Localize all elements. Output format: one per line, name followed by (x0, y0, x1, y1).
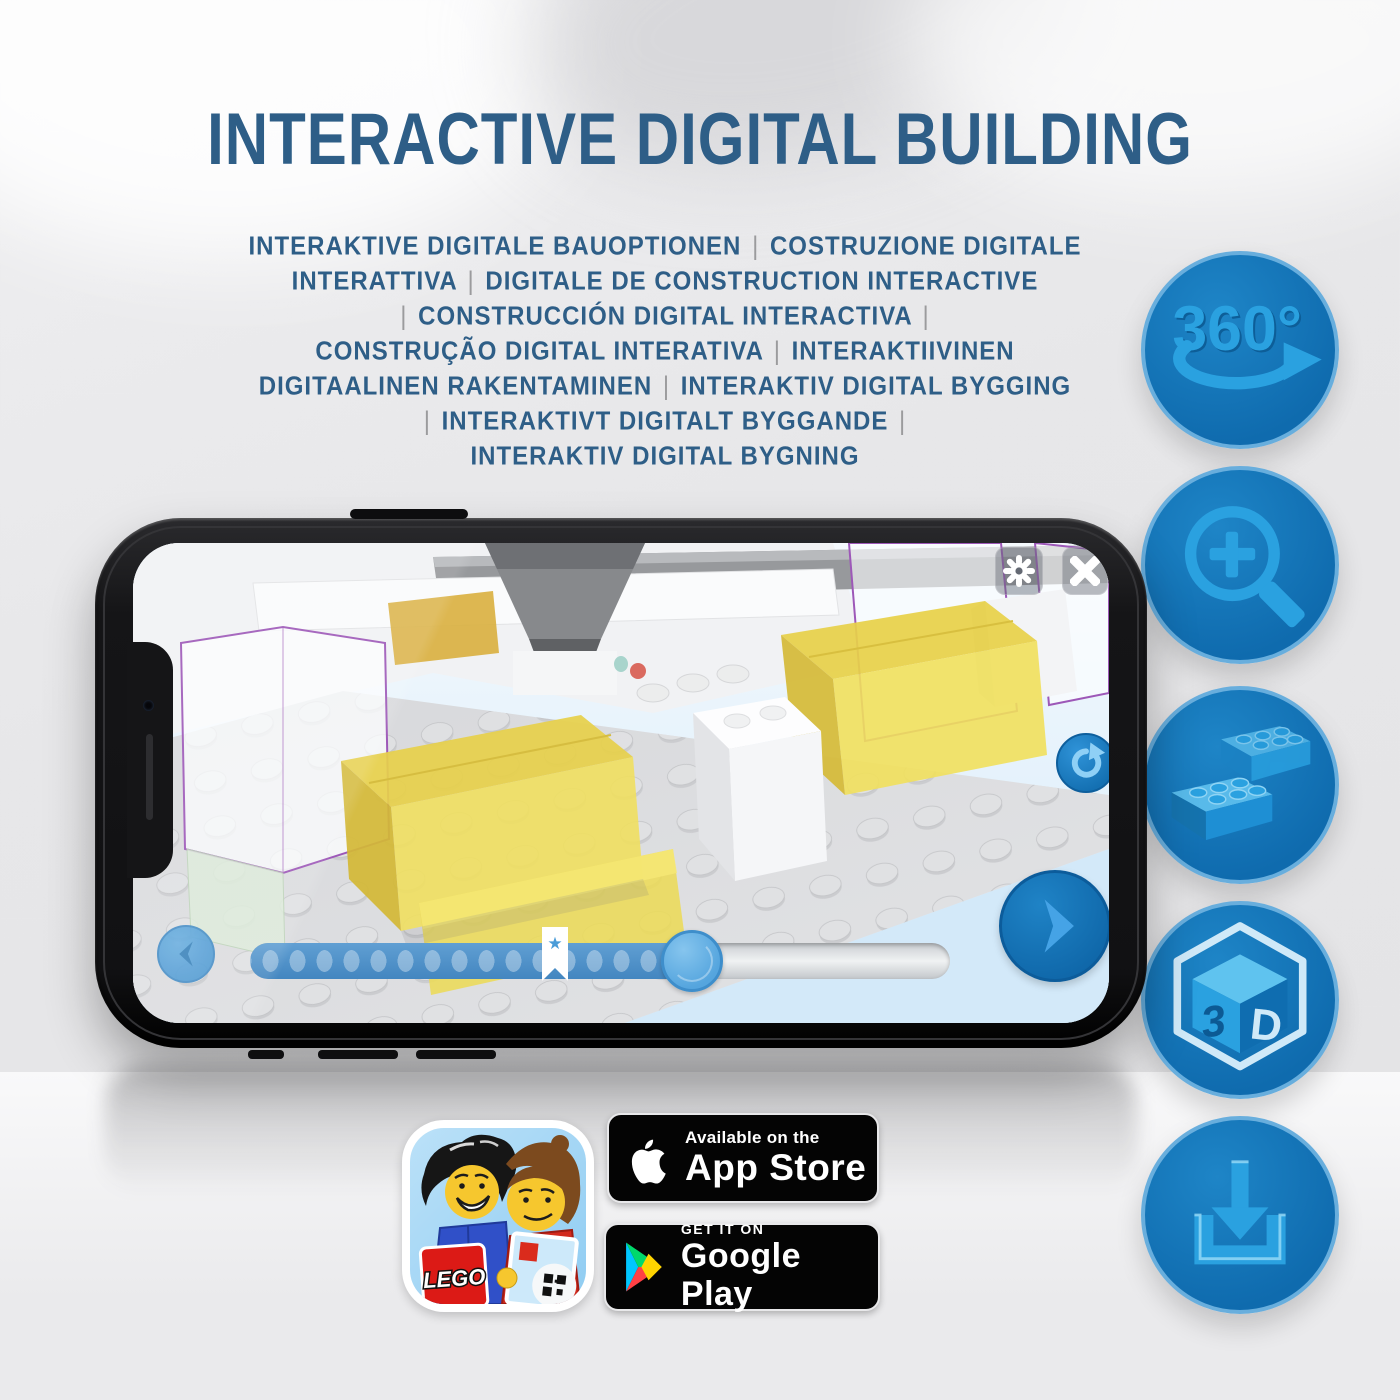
360-rotation-icon: 360° 360° (1145, 255, 1335, 445)
front-camera (143, 700, 154, 711)
chevron-left-icon (159, 926, 213, 982)
settings-button[interactable] (995, 547, 1043, 595)
app-store-label: App Store (685, 1148, 866, 1188)
subtitle-line: INTERAKTIV DIGITAL BYGNING (60, 439, 1270, 474)
google-play-badge[interactable]: GET IT ON Google Play (604, 1223, 880, 1311)
lego-app-icon[interactable]: LEGO (402, 1120, 594, 1312)
phone-side-button (416, 1050, 496, 1059)
pipe-separator: | (397, 302, 410, 331)
pipe-separator: | (660, 372, 673, 401)
phone-power-button (248, 1050, 284, 1059)
pipe-separator: | (771, 337, 784, 366)
feature-3d-view-icon: 3 D (1141, 901, 1339, 1099)
pipe-separator: | (896, 407, 909, 436)
rotate-view-button[interactable] (1056, 733, 1109, 793)
subtitle-line: DIGITAALINEN RAKENTAMINEN | INTERAKTIV D… (60, 369, 1270, 404)
pipe-separator: | (749, 232, 762, 261)
app-store-tagline: Available on the (685, 1128, 866, 1148)
google-play-label: Google Play (681, 1237, 878, 1313)
lego-logo: LEGO (420, 1244, 488, 1304)
feature-zoom-icon (1141, 466, 1339, 664)
app-screen: ★ (133, 543, 1109, 1023)
girl-hand (497, 1268, 517, 1288)
phone-notch (127, 642, 173, 878)
google-play-tagline: GET IT ON (681, 1221, 878, 1237)
feature-360-rotation-icon: 360° 360° (1141, 251, 1339, 449)
google-play-logo-icon (622, 1240, 667, 1294)
marketing-page: { "title": { "text": "INTERACTIVE DIGITA… (0, 0, 1400, 1400)
3d-view-icon: 3 D (1145, 905, 1335, 1095)
subtitle-line: INTERAKTIVE DIGITALE BAUOPTIONEN | COSTR… (60, 229, 1270, 264)
rotation-degrees-label: 360° (1172, 294, 1302, 364)
slider-progress-fill (250, 943, 691, 979)
close-button[interactable] (1062, 547, 1108, 595)
phone-mockup: ★ (95, 518, 1147, 1048)
cube-d-label: D (1248, 999, 1285, 1051)
app-store-badge[interactable]: Available on the App Store (607, 1113, 879, 1203)
phone-volume-button (350, 509, 468, 519)
subtitle-line: | INTERAKTIVT DIGITALT BYGGANDE | (60, 404, 1270, 439)
previous-step-button[interactable] (157, 925, 215, 983)
close-icon (1070, 556, 1100, 586)
pipe-separator: | (421, 407, 434, 436)
gear-icon (1002, 554, 1036, 588)
chevron-right-icon (1002, 870, 1108, 982)
feature-download-icon (1141, 1116, 1339, 1314)
download-icon (1145, 1120, 1335, 1310)
pipe-separator: | (465, 267, 478, 296)
qr-card (506, 1233, 581, 1304)
next-step-button[interactable] (999, 870, 1109, 982)
multilanguage-subtitle: INTERAKTIVE DIGITALE BAUOPTIONEN | COSTR… (60, 229, 1270, 474)
subtitle-line: INTERATTIVA | DIGITALE DE CONSTRUCTION I… (60, 264, 1270, 299)
earpiece-speaker (146, 734, 153, 820)
slider-thumb[interactable] (661, 930, 723, 992)
zoom-in-icon (1145, 470, 1335, 660)
subtitle-line: | CONSTRUCCIÓN DIGITAL INTERACTIVA | (60, 299, 1270, 334)
rotate-icon (1064, 741, 1108, 785)
build-progress-slider[interactable] (250, 943, 950, 979)
page-title: INTERACTIVE DIGITAL BUILDING (0, 97, 1400, 181)
pipe-separator: | (920, 302, 933, 331)
subtitle-line: CONSTRUÇÃO DIGITAL INTERATIVA | INTERAKT… (60, 334, 1270, 369)
lego-app-artwork: LEGO (410, 1128, 586, 1304)
apple-logo-icon (627, 1131, 671, 1185)
feature-brick-icon (1141, 686, 1339, 884)
lego-logo-text: LEGO (422, 1264, 486, 1293)
lego-brick-icon (1145, 690, 1335, 880)
phone-side-button (318, 1050, 398, 1059)
